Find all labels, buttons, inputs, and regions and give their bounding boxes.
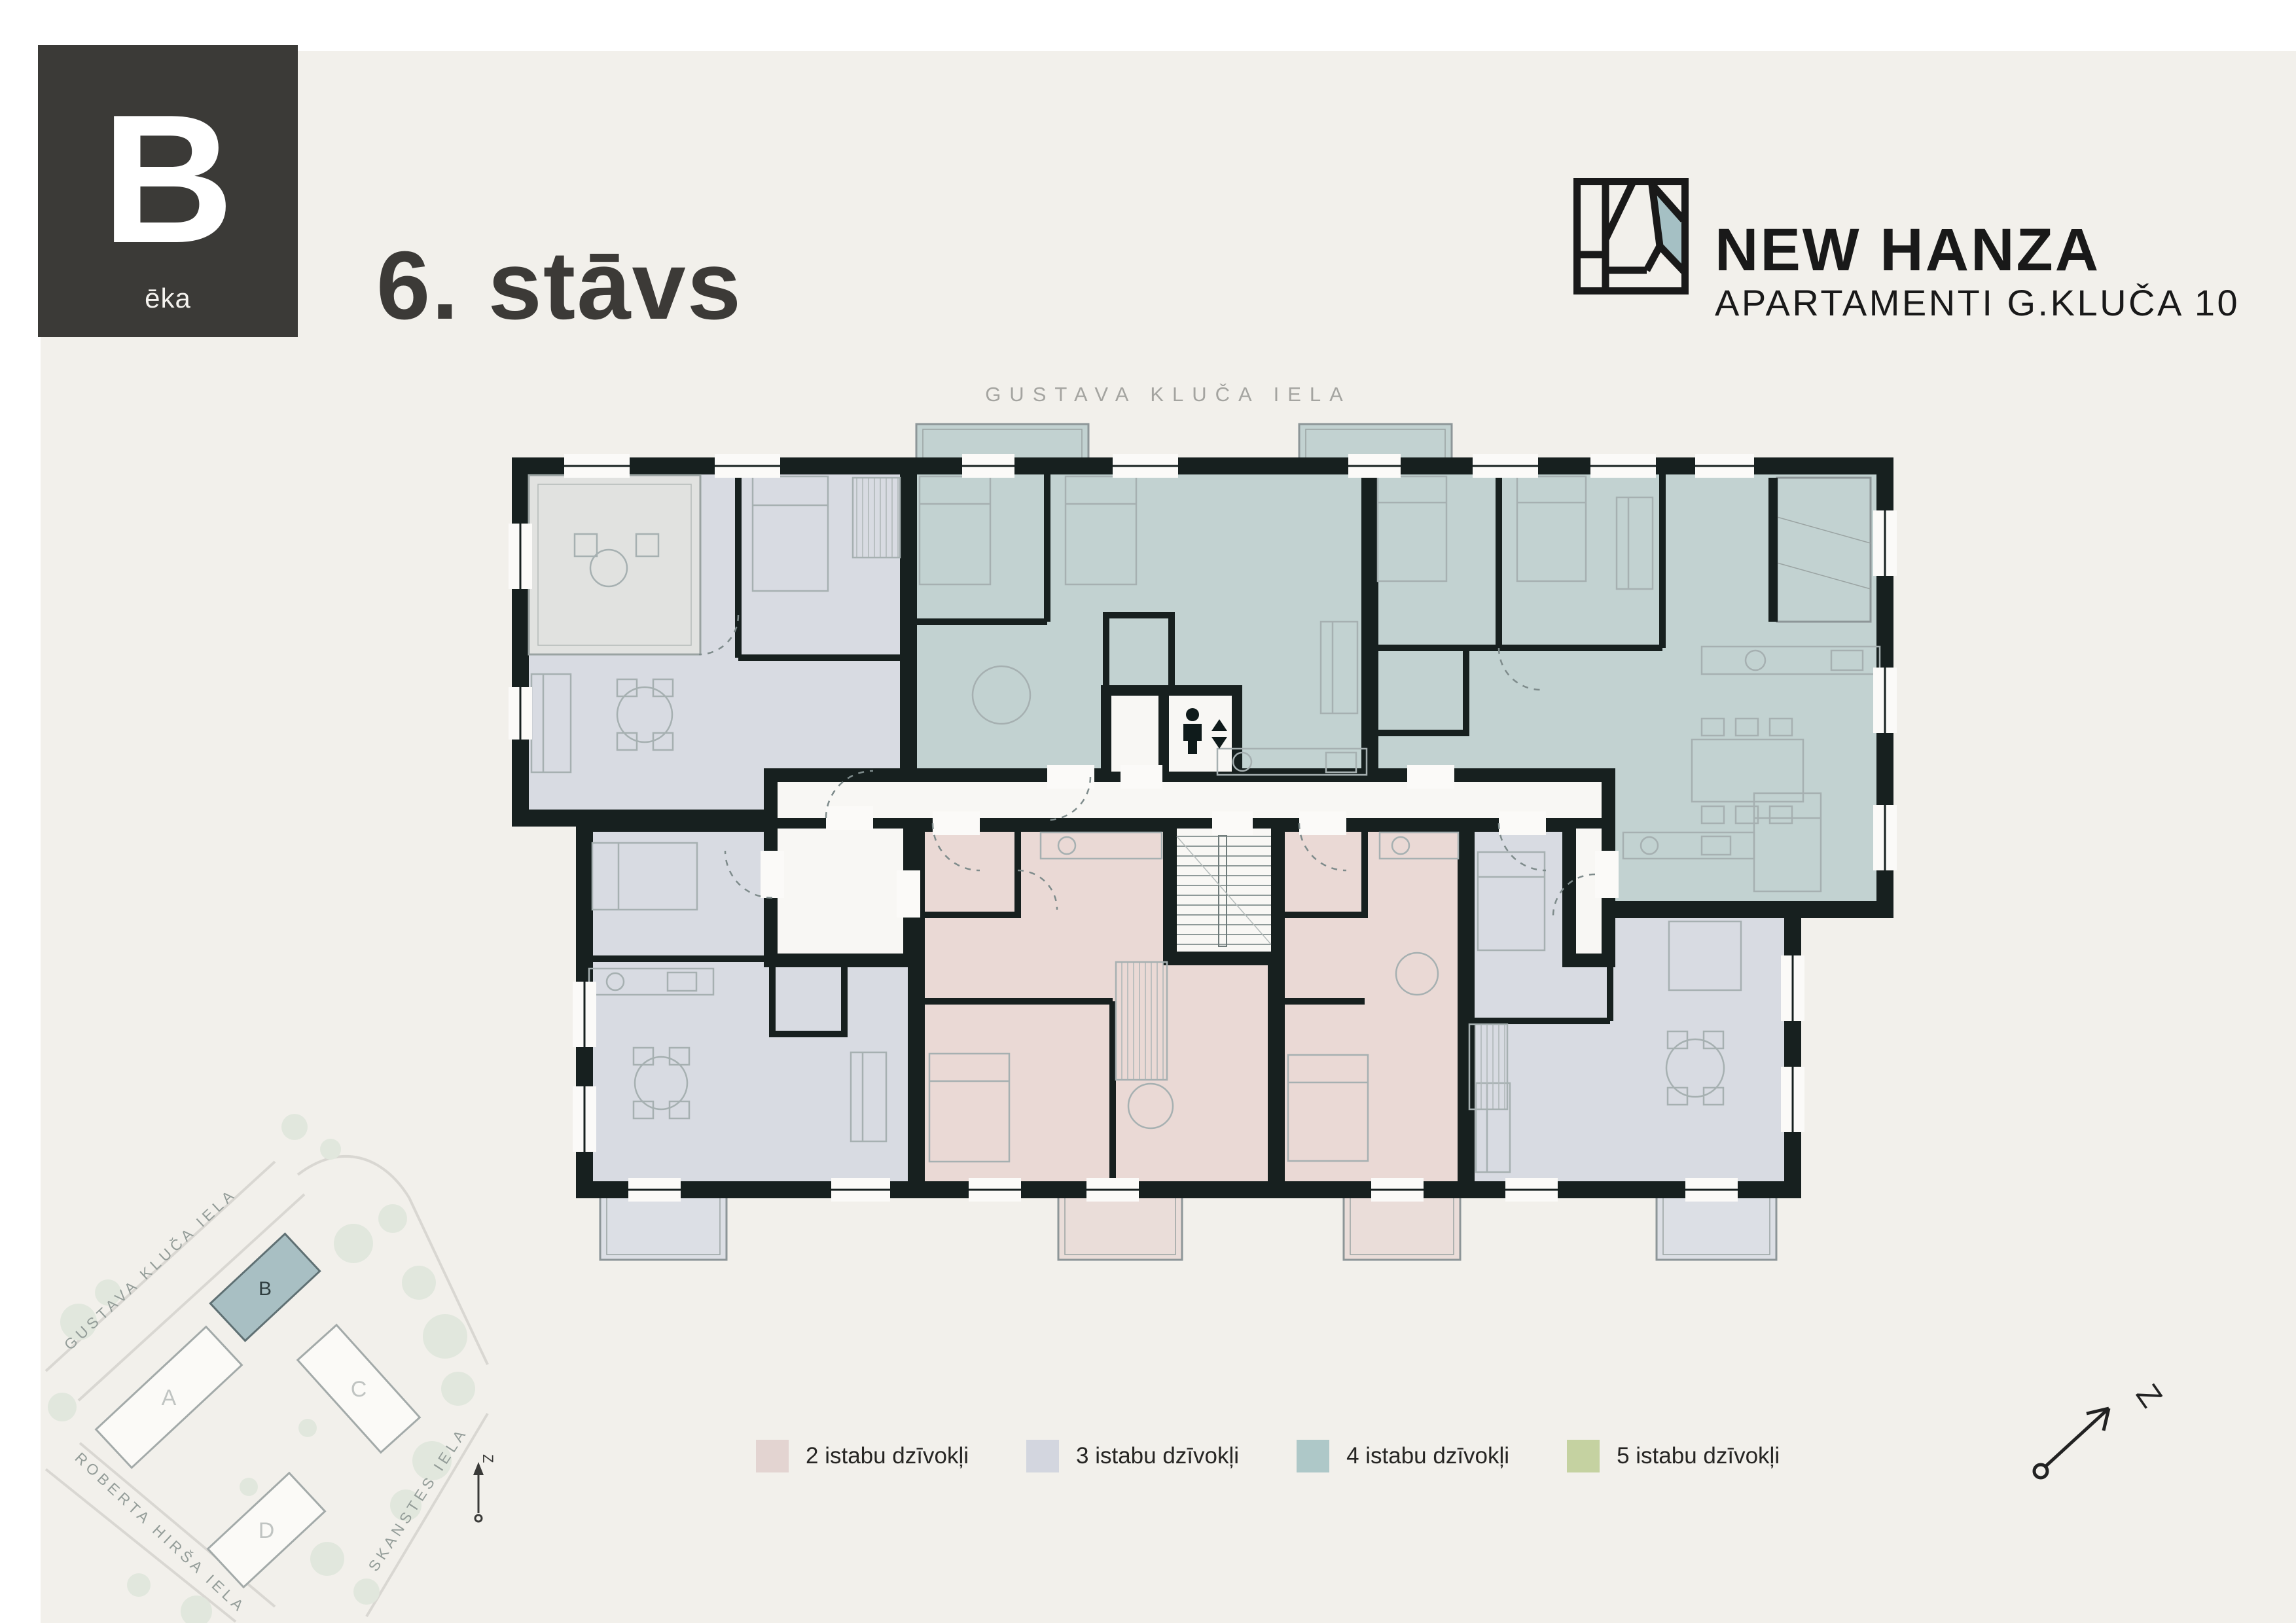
legend-item-5room: 5 istabu dzīvokļi [1567, 1440, 1780, 1472]
site-building-d-label: D [259, 1518, 275, 1543]
legend-label-2room: 2 istabu dzīvokļi [806, 1443, 969, 1469]
terrace-upper-left [529, 475, 700, 654]
site-street-gustava: GUSTAVA KLUČA IELA [60, 1185, 240, 1353]
site-building-a-label: A [162, 1385, 177, 1410]
entry-vestibule-left [772, 823, 908, 959]
site-building-b-label: B [259, 1278, 272, 1300]
legend-item-2room: 2 istabu dzīvokļi [756, 1440, 969, 1472]
site-building-c-label: C [351, 1377, 367, 1402]
legend-label-3room: 3 istabu dzīvokļi [1076, 1443, 1239, 1469]
legend-item-3room: 3 istabu dzīvokļi [1026, 1440, 1239, 1472]
north-compass [2034, 1408, 2109, 1478]
legend-label-4room: 4 istabu dzīvokļi [1346, 1443, 1509, 1469]
legend-label-5room: 5 istabu dzīvokļi [1617, 1443, 1780, 1469]
site-north-label: Z [480, 1454, 496, 1463]
legend: 2 istabu dzīvokļi 3 istabu dzīvokļi 4 is… [756, 1440, 1780, 1472]
site-street-roberta: ROBERTA HIRŠA IELA [72, 1448, 251, 1616]
floor-plan-page: B ēka 6. stāvs NEW HANZA APARTAMENTI G.K… [0, 0, 2296, 1623]
legend-swatch-2room [756, 1440, 789, 1472]
floor-plan-drawing: A B C D GUSTAVA KLUČA IELA ROBERTA HIRŠA… [0, 0, 2296, 1623]
north-compass-label: Z [2129, 1378, 2168, 1414]
apartment-2room-lower-right [1276, 823, 1466, 1190]
legend-swatch-3room [1026, 1440, 1059, 1472]
legend-swatch-5room [1567, 1440, 1600, 1472]
legend-swatch-4room [1297, 1440, 1329, 1472]
site-north-marker [473, 1462, 484, 1522]
corridor [772, 777, 1607, 823]
recessed-balcony-upper-right [1777, 478, 1871, 622]
legend-item-4room: 4 istabu dzīvokļi [1297, 1440, 1509, 1472]
site-map: A B C D GUSTAVA KLUČA IELA ROBERTA HIRŠA… [46, 1114, 496, 1623]
